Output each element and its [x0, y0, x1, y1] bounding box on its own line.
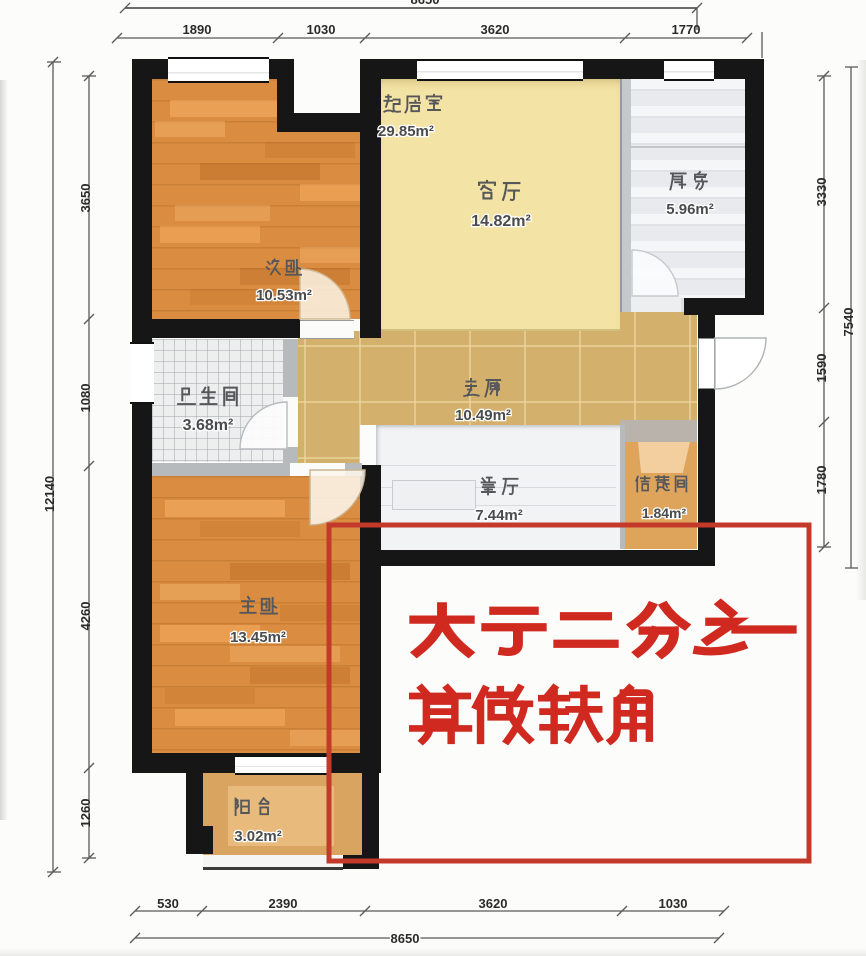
svg-text:2390: 2390 — [269, 896, 298, 911]
svg-text:1590: 1590 — [814, 354, 829, 383]
svg-text:3620: 3620 — [481, 22, 510, 37]
svg-text:530: 530 — [157, 896, 179, 911]
svg-text:14.82m²: 14.82m² — [471, 213, 531, 230]
svg-text:3.02m²: 3.02m² — [234, 828, 282, 845]
svg-text:1890: 1890 — [183, 22, 212, 37]
svg-text:7540: 7540 — [841, 308, 856, 337]
svg-text:3620: 3620 — [479, 896, 508, 911]
svg-text:1.84m²: 1.84m² — [642, 505, 687, 521]
svg-text:10.49m²: 10.49m² — [455, 407, 511, 424]
svg-text:29.85m²: 29.85m² — [378, 123, 434, 140]
svg-text:4260: 4260 — [78, 602, 93, 631]
svg-text:1780: 1780 — [814, 466, 829, 495]
svg-text:1030: 1030 — [307, 22, 336, 37]
svg-text:8650: 8650 — [391, 931, 420, 946]
svg-text:5.96m²: 5.96m² — [666, 201, 714, 218]
svg-text:8650: 8650 — [411, 0, 440, 7]
svg-text:12140: 12140 — [42, 476, 57, 512]
svg-text:7.44m²: 7.44m² — [475, 507, 523, 524]
svg-text:1030: 1030 — [659, 896, 688, 911]
svg-text:10.53m²: 10.53m² — [256, 287, 312, 304]
svg-text:3.68m²: 3.68m² — [183, 417, 234, 434]
svg-text:3650: 3650 — [78, 184, 93, 213]
svg-text:3330: 3330 — [814, 178, 829, 207]
svg-text:1260: 1260 — [78, 799, 93, 828]
svg-text:13.45m²: 13.45m² — [230, 629, 286, 646]
svg-text:1080: 1080 — [78, 384, 93, 413]
svg-text:1770: 1770 — [672, 22, 701, 37]
